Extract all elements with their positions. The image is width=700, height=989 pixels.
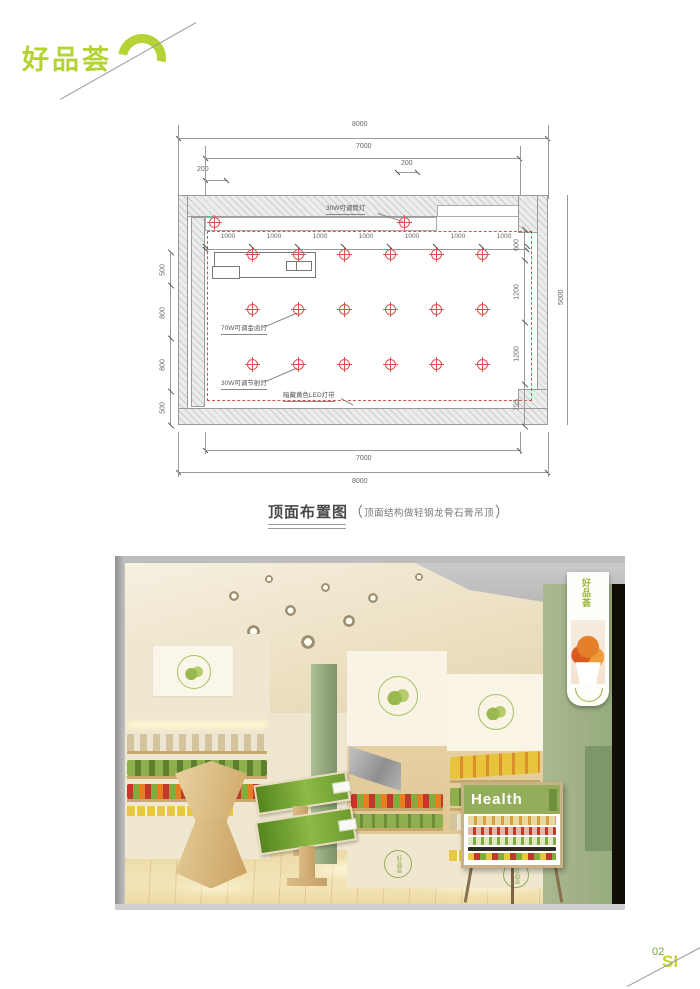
lightbox-logo-text: 好品荟 <box>580 578 593 608</box>
ceiling-downlight <box>229 591 239 601</box>
light-fixture-symbol <box>339 249 350 260</box>
dim-line <box>178 472 548 473</box>
dim-value: 500 <box>160 403 167 415</box>
price-chip <box>332 780 351 794</box>
light-fixture-symbol <box>247 304 258 315</box>
poster-food-row <box>468 816 556 825</box>
left-sign-panel <box>153 646 233 696</box>
ext-line <box>178 432 179 477</box>
shelf-board <box>351 828 443 831</box>
dim-bottom-outer: 8000 <box>352 478 368 485</box>
hanging-lightbox-sign: 好品荟 <box>567 572 609 706</box>
dim-value: 795 <box>514 400 521 412</box>
food-photo <box>571 620 605 684</box>
light-fixture-symbol <box>247 359 258 370</box>
light-fixture-symbol <box>431 304 442 315</box>
light-fixture-symbol <box>431 249 442 260</box>
health-poster: Health <box>461 782 563 868</box>
dim-value: 800 <box>160 360 167 372</box>
dim-offset-mid: 200 <box>401 160 413 167</box>
dim-spacing: 1000 <box>435 233 481 243</box>
wall-left <box>178 195 188 425</box>
light-fixture-symbol <box>477 304 488 315</box>
light-fixture-symbol <box>293 359 304 370</box>
dim-line <box>178 138 548 139</box>
photo-frame-bottom <box>115 904 625 910</box>
fruit-logo-icon <box>478 694 514 730</box>
light-fixture-symbol <box>431 359 442 370</box>
product-row <box>351 814 443 828</box>
label-downlight: 30W可调筒灯 <box>326 204 365 215</box>
poster-food-row <box>468 853 556 860</box>
caption-note: 顶面结构做轻钢龙骨石膏吊顶 <box>364 505 494 519</box>
light-fixture-symbol <box>339 304 350 315</box>
ceiling-downlight <box>321 583 330 592</box>
ceiling-downlight <box>415 573 423 581</box>
dim-value: 600 <box>514 240 521 252</box>
dim-top-inner: 7000 <box>356 143 372 150</box>
poster-food-row <box>468 837 556 845</box>
label-spotlight: 30W可调节射灯 <box>221 379 267 390</box>
fruit-logo-blob <box>486 705 505 721</box>
dim-value: 1200 <box>514 346 521 362</box>
caption-underline <box>268 524 346 529</box>
dim-spacing-row: 1000100010001000100010001000 <box>205 233 527 243</box>
caption-paren-open: （ <box>349 502 363 522</box>
dark-edge-strip <box>612 584 625 904</box>
soffit-downlight-symbol <box>399 217 410 228</box>
green-arc-icon <box>575 688 603 702</box>
dim-spacing: 1000 <box>343 233 389 243</box>
dim-right-outer: 5000 <box>558 289 565 305</box>
ceiling-downlight <box>285 605 296 616</box>
bowl-shape <box>574 662 603 684</box>
table-pedestal <box>299 846 315 880</box>
dim-value: 500 <box>160 264 167 276</box>
dims-right-column: 60012001200795 <box>524 230 525 426</box>
fruit-logo-blob <box>387 688 408 705</box>
dim-value: 800 <box>160 307 167 319</box>
wall-bottom <box>178 408 548 425</box>
dim-top-outer: 8000 <box>352 121 368 128</box>
shelf-board <box>351 808 443 811</box>
dim-spacing: 1000 <box>297 233 343 243</box>
ext-line <box>548 125 549 195</box>
dim-line <box>205 180 227 181</box>
dim-offset-left: 200 <box>197 166 209 173</box>
fruit-logo-blob <box>185 665 203 680</box>
photo-frame-top <box>125 556 625 563</box>
product-row <box>127 734 267 751</box>
drawing-caption: 顶面布置图 （ 顶面结构做轻钢龙骨石膏吊顶 ） <box>268 501 510 522</box>
light-fixture-symbol <box>477 249 488 260</box>
dim-spacing: 1000 <box>389 233 435 243</box>
mid-upper-panel <box>347 651 447 746</box>
shelf-light-glow <box>127 722 267 728</box>
table-base <box>287 878 327 886</box>
ext-line <box>548 195 549 199</box>
poster-title-text: Health <box>471 791 523 808</box>
light-fixture-symbol <box>477 359 488 370</box>
dim-value: 1200 <box>514 284 521 300</box>
ceiling-downlight <box>368 593 378 603</box>
light-fixture-symbol <box>339 359 350 370</box>
dim-line <box>205 158 520 159</box>
mid-cabinet-base: 好品荟 <box>347 834 447 888</box>
counter-outline-small <box>212 266 240 279</box>
ceiling-downlight <box>265 575 273 583</box>
light-fixture-symbol <box>293 304 304 315</box>
dim-spacing: 1000 <box>205 233 251 243</box>
caption-paren-close: ） <box>495 502 509 522</box>
fruit-logo-icon <box>177 655 211 689</box>
fruit-logo-icon <box>378 676 418 716</box>
soffit-downlight-symbol <box>209 217 220 228</box>
store-interior-render: 好品荟 好品荟 好品荟 <box>115 556 625 910</box>
counter-outline-small <box>286 261 312 271</box>
light-fixture-symbol <box>247 249 258 260</box>
poster-food-row <box>468 827 556 835</box>
right-upper-panel <box>447 674 543 751</box>
label-metal-halide: 70W可调金卤灯 <box>221 324 267 335</box>
label-led-strip: 暗藏黄色LED灯带 <box>283 391 335 402</box>
light-fixture-symbol <box>293 249 304 260</box>
ceiling-downlight <box>343 615 355 627</box>
light-fixture-symbol <box>385 249 396 260</box>
poster-food-row <box>468 847 556 851</box>
poster-tag <box>549 789 557 811</box>
price-chip <box>338 818 357 832</box>
cabinet-logo-text: 好品荟 <box>395 855 401 873</box>
ext-line <box>205 146 206 195</box>
wall-top-notch <box>437 205 520 217</box>
poster-title: Health <box>464 785 560 814</box>
shelf-board <box>127 751 267 754</box>
ext-line <box>520 146 521 195</box>
page: 好品荟 8000 7000 200 200 30W可调筒灯 10 <box>0 0 700 989</box>
dim-spacing: 1000 <box>251 233 297 243</box>
easel-leg <box>511 866 514 904</box>
dim-line <box>567 195 568 425</box>
wall-inset-panel <box>585 746 612 851</box>
photo-frame-left <box>115 556 125 910</box>
ext-line <box>205 432 206 454</box>
dim-line <box>397 172 418 173</box>
dim-bottom-inner: 7000 <box>356 455 372 462</box>
ceiling-plan-drawing: 8000 7000 200 200 30W可调筒灯 10001000100010… <box>0 0 700 550</box>
light-fixture-symbol <box>385 304 396 315</box>
caption-title: 顶面布置图 <box>268 501 348 522</box>
light-fixture-symbol <box>385 359 396 370</box>
ext-line <box>548 432 549 477</box>
product-row <box>351 794 443 808</box>
ext-line <box>178 125 179 195</box>
ceiling-downlight <box>301 635 315 649</box>
dim-line <box>205 450 520 451</box>
counter-divider <box>296 261 297 271</box>
cabinet-logo-left: 好品荟 <box>384 850 412 878</box>
dims-left-column: 500800800500 <box>170 253 171 425</box>
ext-line <box>520 432 521 454</box>
